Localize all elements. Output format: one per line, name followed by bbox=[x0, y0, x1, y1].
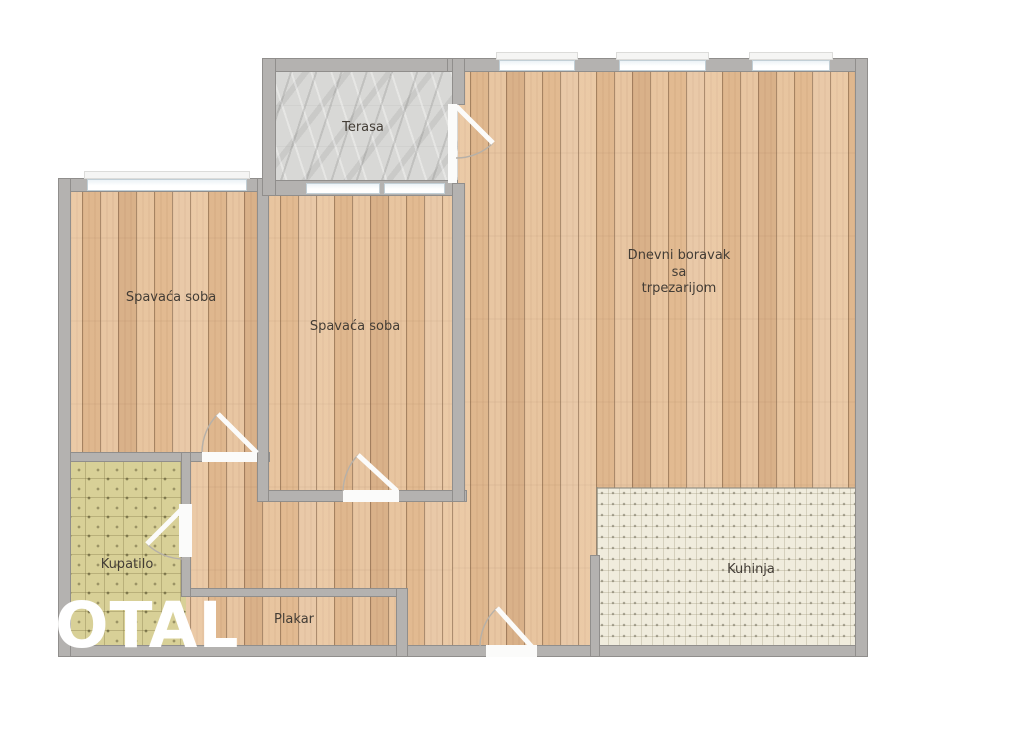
door-arc bbox=[456, 143, 493, 158]
door-arc bbox=[202, 414, 218, 452]
room-label-line: sa bbox=[628, 265, 731, 282]
room-label-line: trpezarijom bbox=[628, 281, 731, 298]
floor-plan-canvas: Terasa Spavaća soba Spavaća soba Dnevni … bbox=[0, 0, 1024, 735]
door-leaf bbox=[358, 455, 397, 491]
room-label-spavaca-soba-left: Spavaća soba bbox=[126, 290, 216, 306]
room-label-line: Dnevni boravak bbox=[628, 248, 731, 265]
door-leaf bbox=[497, 608, 532, 647]
room-label-terasa: Terasa bbox=[342, 120, 384, 136]
watermark-text: OTAL bbox=[55, 594, 240, 657]
door-leaf bbox=[218, 414, 257, 453]
room-label-spavaca-soba-middle: Spavaća soba bbox=[310, 319, 400, 335]
room-label-kupatilo: Kupatilo bbox=[101, 557, 154, 573]
door-leaf bbox=[456, 106, 493, 143]
room-label-plakar: Plakar bbox=[274, 612, 314, 628]
room-label-dnevni-boravak: Dnevni boravak sa trpezarijom bbox=[628, 248, 731, 298]
door-arc bbox=[480, 608, 497, 647]
door-leaf bbox=[147, 507, 184, 544]
room-label-kuhinja: Kuhinja bbox=[727, 562, 775, 578]
door-arc bbox=[343, 455, 358, 491]
